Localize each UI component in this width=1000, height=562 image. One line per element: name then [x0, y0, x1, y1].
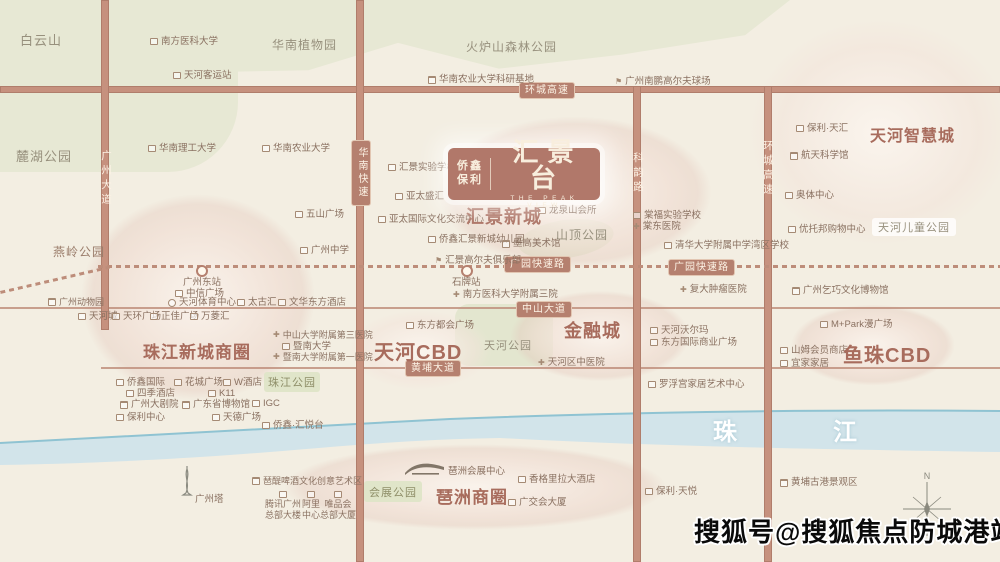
expo-center-icon [404, 460, 446, 478]
building-icon [262, 422, 270, 429]
station-label: 广州东站 [183, 277, 221, 288]
poi-label: 墨高美术馆 [502, 238, 561, 249]
building-icon [174, 379, 182, 386]
logo-main-block: 汇景台 THE PEAK VIEW [498, 140, 591, 209]
poi-label: 暨南大学 [282, 341, 331, 352]
park-label: 山顶公园 [556, 226, 608, 243]
poi-label: 广州乞巧文化博物馆 [792, 285, 889, 296]
building-icon [252, 400, 260, 407]
canton-tower-icon [180, 466, 194, 496]
poi-label: 天德广场 [212, 412, 261, 423]
building-icon [388, 164, 396, 171]
building-icon [406, 322, 414, 329]
hospital-icon: ✚ [273, 353, 280, 361]
poi-label: 琶醍啤酒文化创意艺术区 [252, 476, 362, 487]
poi-label: 优托邦购物中心 [788, 224, 866, 235]
museum-icon [502, 240, 510, 248]
golf-flag-icon: ⚑ [615, 78, 622, 86]
park-label: 火炉山森林公园 [466, 38, 557, 55]
building-icon [633, 212, 641, 219]
museum-icon [792, 287, 800, 295]
poi-label: 罗浮宫家居艺术中心 [648, 379, 745, 390]
road-name-label: 科韵路 [631, 152, 646, 196]
poi-label: IGC [252, 398, 280, 409]
hospital-icon: ✚ [680, 286, 687, 294]
poi-label: 广州中学 [300, 245, 349, 256]
building-icon [780, 360, 788, 367]
poi-label: 汇景实验学校 [388, 162, 456, 173]
logo-title: 汇景台 [498, 140, 591, 192]
poi-label: 五山广场 [295, 209, 344, 220]
district-label: 天河CBD [374, 336, 462, 365]
building-icon [307, 491, 315, 498]
poi-label: 阿里 中心 [302, 491, 320, 521]
building-icon [150, 313, 158, 320]
building-icon [395, 193, 403, 200]
road-zhongshan-avenue [0, 307, 1000, 309]
road-badge: 中山大道 [516, 301, 572, 318]
river-label-first: 珠 [713, 412, 737, 447]
building-icon [780, 347, 788, 354]
poi-label: 万菱汇 [190, 311, 230, 322]
museum-icon [780, 479, 788, 487]
poi-label: 唯品会 总部大厦 [320, 491, 356, 521]
poi-label: 广交会大厦 [508, 497, 567, 508]
road-badge: 华南快速 [351, 140, 371, 206]
logo-brand-top: 侨鑫 [457, 160, 483, 174]
building-icon [295, 211, 303, 218]
poi-label: 广州动物园 [48, 297, 104, 308]
poi-label: W酒店 [223, 377, 262, 388]
poi-label: 奥体中心 [785, 190, 834, 201]
building-icon [78, 313, 86, 320]
museum-icon [252, 477, 260, 485]
building-icon [648, 381, 656, 388]
museum-icon [790, 152, 798, 160]
building-icon [378, 216, 386, 223]
building-icon [282, 343, 290, 350]
building-icon [112, 313, 120, 320]
poi-label: 四季酒店 [126, 388, 175, 399]
building-icon [279, 491, 287, 498]
park-label: 燕岭公园 [53, 243, 105, 260]
building-icon [664, 242, 672, 249]
district-label: 天河智慧城 [870, 122, 955, 146]
building-icon [223, 379, 231, 386]
poi-label: 亚太盛汇 [395, 191, 444, 202]
district-label: 金融城 [564, 317, 621, 343]
building-icon [785, 192, 793, 199]
poi-label: ✚棠东医院 [633, 221, 681, 232]
road-name-label: 环城高速 [761, 140, 776, 198]
hospital-icon: ✚ [538, 359, 545, 367]
hospital-icon: ✚ [453, 291, 460, 299]
poi-label: 棠福实验学校 [633, 210, 701, 221]
poi-label: 侨鑫国际 [116, 377, 165, 388]
compass-n-label: N [924, 471, 931, 481]
road-badge: 广园快速路 [668, 259, 735, 276]
building-icon [300, 247, 308, 254]
poi-label: 文华东方酒店 [278, 297, 346, 308]
station-marker-icon [461, 265, 473, 277]
park-label: 白云山 [20, 30, 62, 49]
building-icon [788, 226, 796, 233]
river-label-second: 江 [833, 412, 857, 447]
poi-label: 宜家家居 [780, 358, 829, 369]
park-label: 天河公园 [484, 337, 532, 353]
building-icon [278, 299, 286, 306]
poi-label: ✚天河区中医院 [538, 357, 605, 368]
poi-label: 航天科学馆 [790, 150, 849, 161]
poi-label: 山姆会员商店 [780, 345, 848, 356]
station-marker-icon [196, 265, 208, 277]
park-label: 麓湖公园 [16, 146, 72, 165]
poi-label: 广州塔 [195, 494, 224, 505]
logo-subtitle: THE PEAK VIEW [498, 195, 591, 209]
museum-icon [182, 401, 190, 409]
sohu-watermark: 搜狐号@搜狐焦点防城港站 [694, 512, 1000, 549]
museum-icon [48, 298, 56, 306]
building-icon [148, 145, 156, 152]
poi-label: 天河沃尔玛 [650, 325, 709, 336]
poi-label: M+Park漫广场 [820, 319, 893, 330]
logo-divider [490, 158, 491, 190]
building-icon [820, 321, 828, 328]
poi-label: ✚中山大学附属第三医院 [273, 330, 373, 341]
building-icon [796, 125, 804, 132]
poi-label: 黄埔古港景观区 [780, 477, 858, 488]
poi-label: 腾讯广州 总部大楼 [265, 491, 301, 521]
building-icon [650, 339, 658, 346]
building-icon [262, 145, 270, 152]
hospital-icon: ✚ [273, 331, 280, 339]
poi-label: 华南理工大学 [148, 143, 216, 154]
district-label: 珠江新城商圈 [143, 338, 251, 363]
building-icon [334, 491, 342, 498]
building-icon [212, 414, 220, 421]
building-icon [518, 476, 526, 483]
poi-label: 侨鑫·汇悦台 [262, 420, 324, 431]
poi-label: 东方都会广场 [406, 320, 474, 331]
building-icon [428, 236, 436, 243]
poi-label: K11 [208, 388, 235, 399]
museum-icon [428, 76, 436, 84]
poi-label: 天河体育中心 [168, 297, 236, 308]
poi-label: 花城广场 [174, 377, 223, 388]
station-label: 石牌站 [452, 277, 481, 288]
poi-label: 广州大剧院 [120, 399, 179, 410]
building-icon [508, 499, 516, 506]
building-icon [116, 414, 124, 421]
park-label: 天河儿童公园 [872, 218, 956, 236]
poi-label: 保利·天汇 [796, 123, 848, 134]
poi-label: 南方医科大学 [150, 36, 218, 47]
poi-label: 太古汇 [237, 297, 277, 308]
stadium-icon [168, 299, 176, 307]
poi-label: ✚暨南大学附属第一医院 [273, 352, 373, 363]
logo-brand-bottom: 保利 [457, 174, 483, 188]
poi-label: 保利·天悦 [645, 486, 697, 497]
poi-label: ✚南方医科大学附属三院 [453, 289, 558, 300]
poi-label: 华南农业大学 [262, 143, 330, 154]
building-icon [645, 488, 653, 495]
building-icon [116, 379, 124, 386]
park-label: 华南植物园 [272, 36, 337, 53]
road-name-label: 广州大道 [99, 150, 114, 208]
building-icon [190, 313, 198, 320]
map-canvas: 南方医科大学天河客运站华南理工大学华南农业大学华南农业大学科研基地⚑广州南鹏高尔… [0, 0, 1000, 562]
poi-label: 琶洲会展中心 [448, 466, 505, 477]
district-label: 琶洲商圈 [436, 483, 508, 508]
poi-label: ⚑广州南鹏高尔夫球场 [615, 76, 711, 87]
poi-label: 东方国际商业广场 [650, 337, 737, 348]
poi-label: 保利中心 [116, 412, 165, 423]
poi-label: 广东省博物馆 [182, 399, 250, 410]
project-logo: 侨鑫 保利 汇景台 THE PEAK VIEW [448, 148, 600, 200]
poi-label: ⚑汇景高尔夫俱乐部 [435, 255, 521, 266]
road-huancheng-expressway-top [0, 86, 1000, 93]
logo-brand-block: 侨鑫 保利 [457, 160, 483, 188]
museum-icon [120, 401, 128, 409]
district-label: 鱼珠CBD [843, 339, 931, 368]
golf-flag-icon: ⚑ [435, 257, 442, 265]
poi-label: 华南农业大学科研基地 [428, 74, 534, 85]
building-icon [173, 72, 181, 79]
building-icon [126, 390, 134, 397]
hospital-icon: ✚ [633, 223, 640, 231]
poi-label: 天河客运站 [173, 70, 232, 81]
building-icon [150, 38, 158, 45]
building-icon [208, 390, 216, 397]
building-icon [237, 299, 245, 306]
poi-label: 清华大学附属中学湾区学校 [664, 240, 789, 251]
building-icon [650, 327, 658, 334]
poi-label: ✚复大肿瘤医院 [680, 284, 747, 295]
poi-label: 香格里拉大酒店 [518, 474, 596, 485]
